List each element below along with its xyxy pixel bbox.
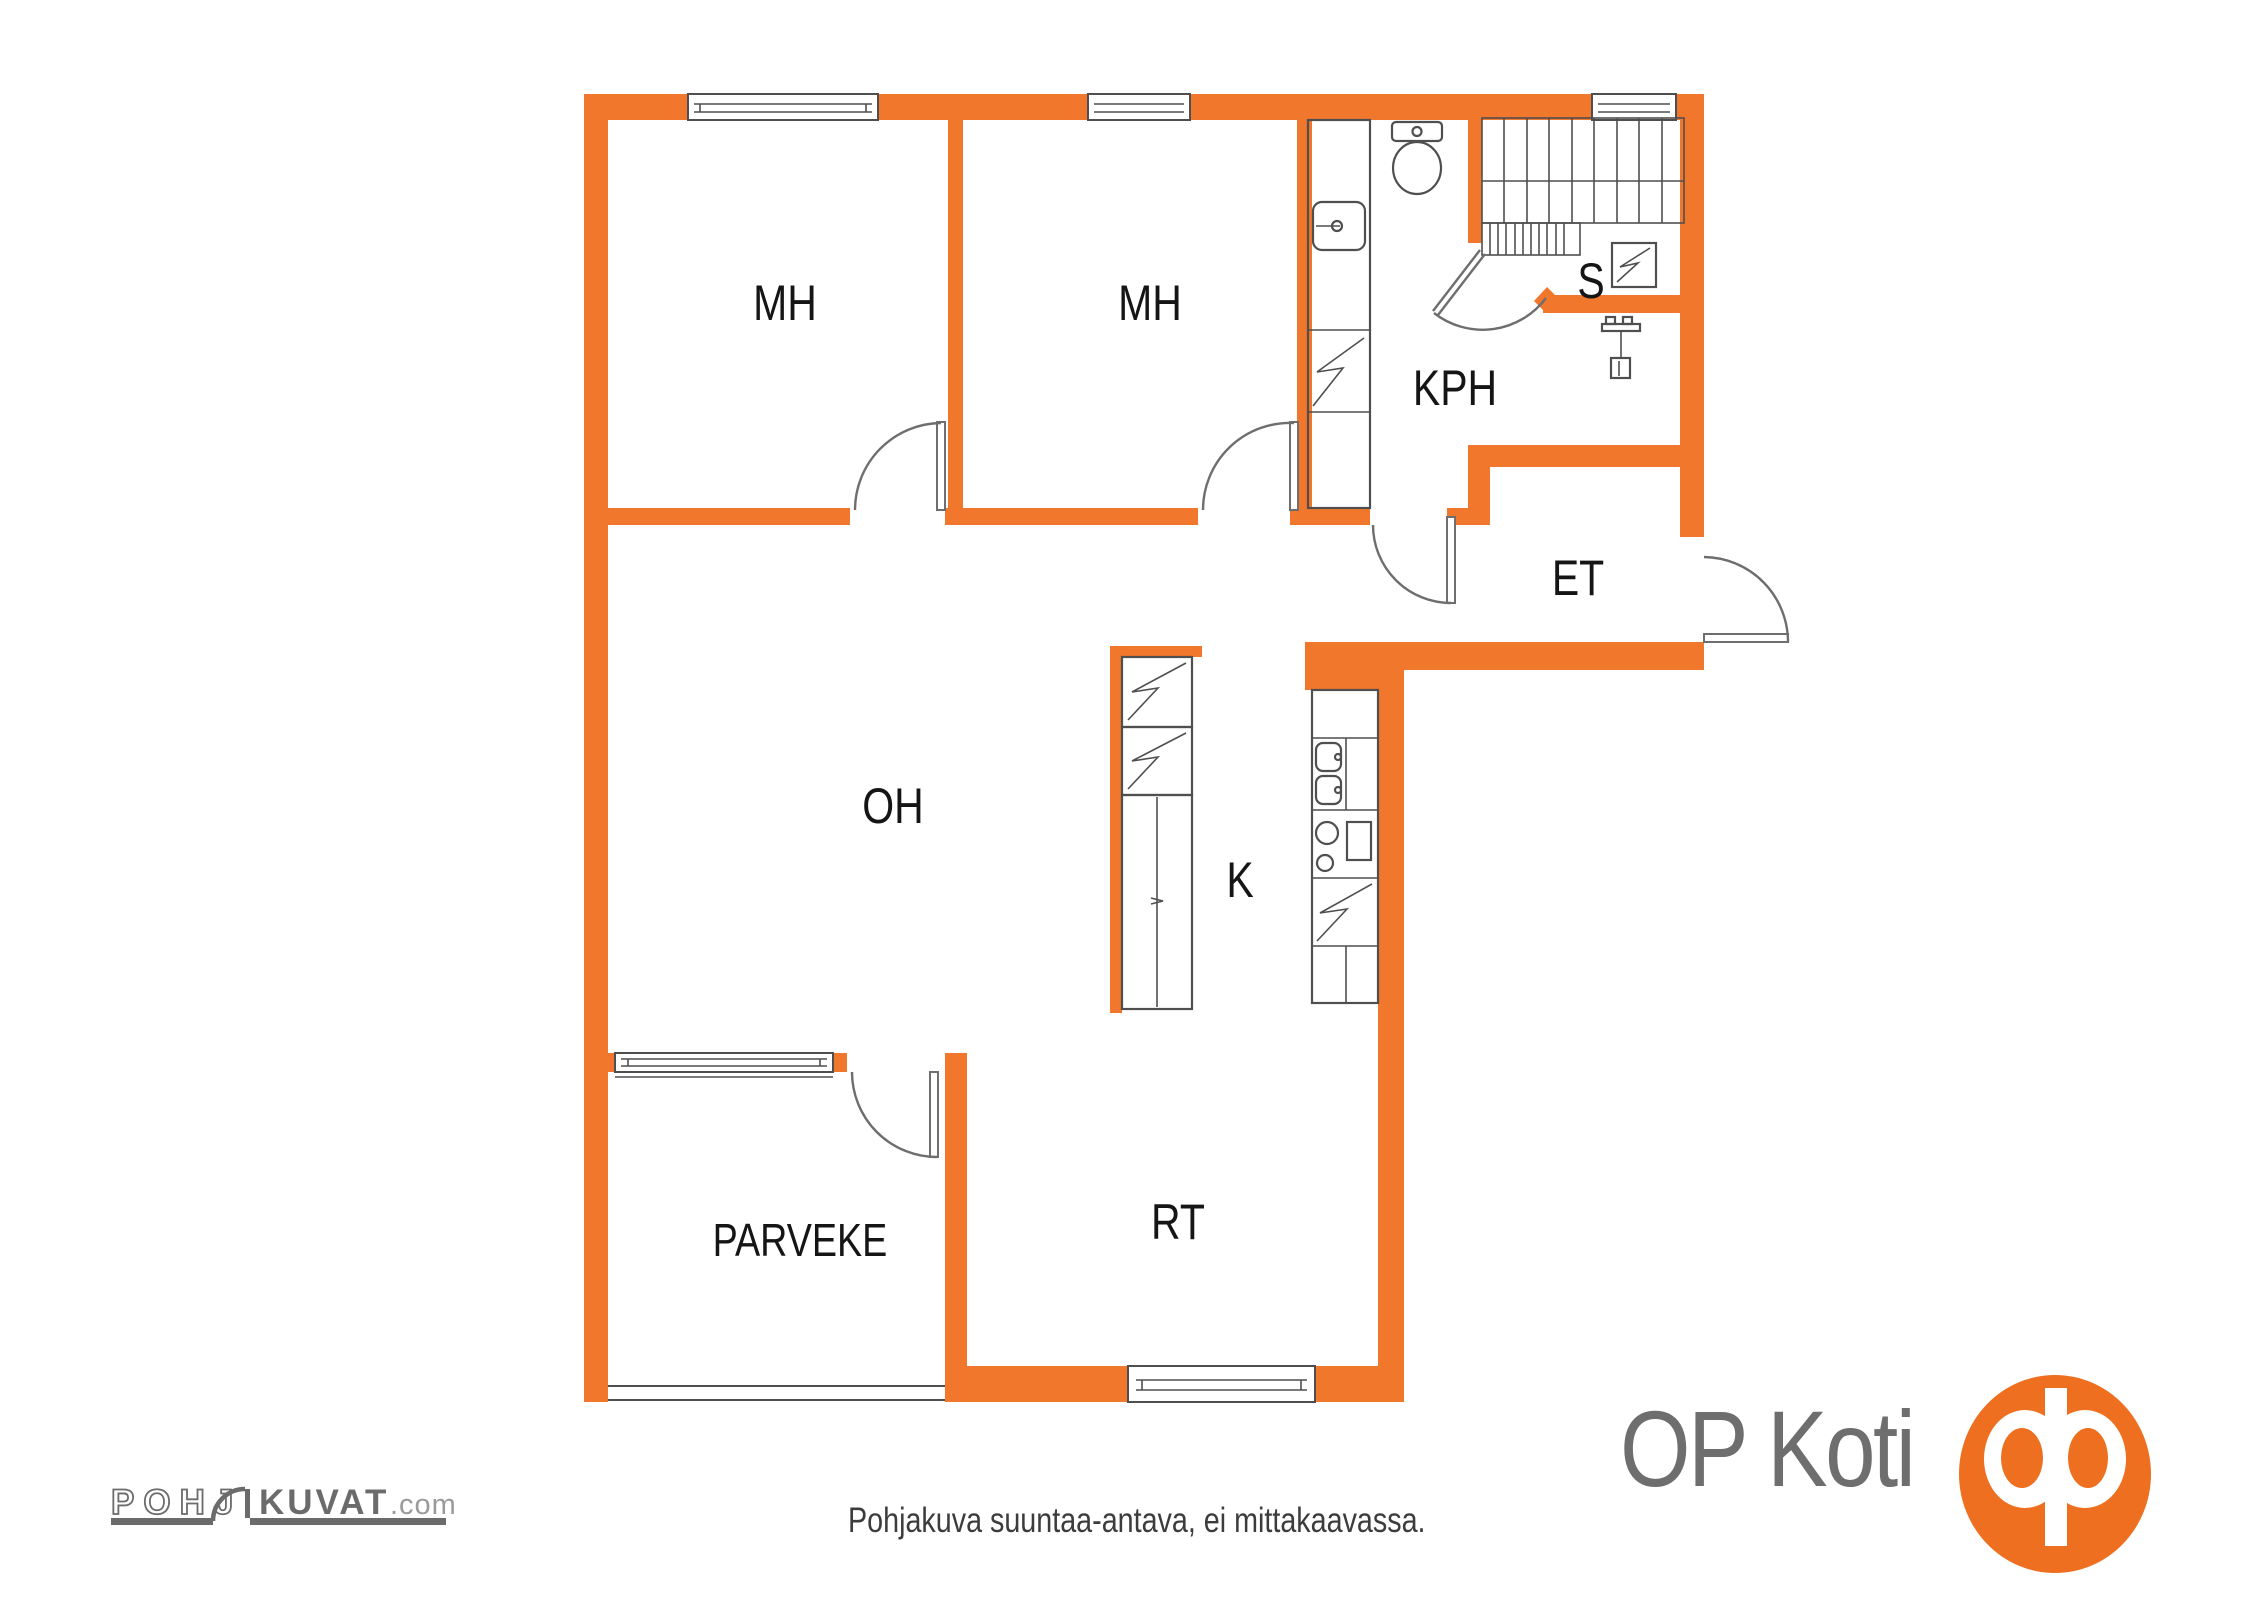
toilet-icon [1392,122,1442,194]
wall-segment [945,1053,967,1402]
wall-segment [967,1366,1128,1402]
wall-segment [1297,118,1312,525]
wall-segment [1468,118,1482,243]
room-label-sauna: S [1577,253,1604,309]
op-logo-hole-left [2001,1428,2043,1488]
fridge-icon [1128,663,1186,720]
wall-segment [1110,646,1122,1013]
wall-segment [1378,670,1404,1402]
appliance-zigzag-icon [1313,338,1364,406]
wall-segment [833,1053,847,1072]
stairs-icon [1482,118,1684,255]
wall-segment [584,1053,615,1072]
room-label-mh2: MH [1118,275,1182,331]
wall-segment [1543,295,1684,313]
wall-segment [584,94,688,120]
balcony-railing [608,1386,945,1400]
wall-segment [584,508,850,525]
wall-segment [1468,445,1490,525]
wall-segment [948,118,963,525]
door-bathroom [1373,517,1455,603]
sauna-heater-icon [1612,243,1656,287]
kitchen-sink-icon [1316,743,1341,804]
door-entrance [1704,557,1788,642]
floorplan-image: MH MH KPH S ET OH K RT PARVEKE POHJ KUVA… [0,0,2262,1600]
wall-segment [1110,646,1202,657]
window-icon [1088,94,1190,120]
oven-icon [1347,822,1371,860]
room-label-et: ET [1552,550,1604,606]
kitchen-counter [1312,690,1378,1003]
room-label-mh1: MH [753,275,817,331]
wall-segment [1190,94,1592,120]
pohjakuvat-solid-text: KUVAT [259,1483,389,1522]
window-icon [688,94,878,120]
fridge-icon [1128,733,1186,789]
bathroom-sink-icon [1313,202,1365,250]
wall-segment [1468,445,1704,467]
room-label-oh: OH [862,778,923,834]
logo-underline [111,1518,213,1525]
wall-segment [584,94,608,1402]
wall-segment [1315,1366,1404,1402]
room-labels: MH MH KPH S ET OH K RT PARVEKE [713,253,1605,1266]
window-icon [1592,94,1676,120]
bathroom-vanity [1308,120,1370,508]
pohjakuvat-outline-text: POHJ [111,1483,242,1522]
room-label-k: K [1226,852,1253,908]
door-bedroom-1 [855,422,945,510]
fridge-icon [1317,884,1372,941]
doors [852,250,1788,1157]
op-koti-wordmark: OP Koti [1620,1395,1913,1503]
room-label-rt: RT [1151,1194,1205,1250]
stove-icon [1316,822,1338,871]
floor-plan: MH MH KPH S ET OH K RT PARVEKE [0,0,2262,1600]
kitchen-island [1122,657,1192,1009]
shower-icon [1602,317,1640,378]
wall-segment [1290,508,1370,525]
wall-segment [878,94,1088,120]
op-logo-hole-right [2068,1428,2108,1488]
room-label-parveke: PARVEKE [713,1214,888,1265]
window-icon [1128,1366,1315,1402]
door-bedroom-2 [1203,422,1298,510]
window-icon [615,1053,833,1077]
room-label-kph: KPH [1413,360,1497,416]
door-sauna [1433,250,1546,330]
wall-segment [945,508,1198,525]
door-balcony [852,1072,938,1157]
floorplan-disclaimer: Pohjakuva suuntaa-antava, ei mittakaavas… [848,1501,1426,1541]
pohjakuvat-suffix: .com [390,1489,457,1521]
